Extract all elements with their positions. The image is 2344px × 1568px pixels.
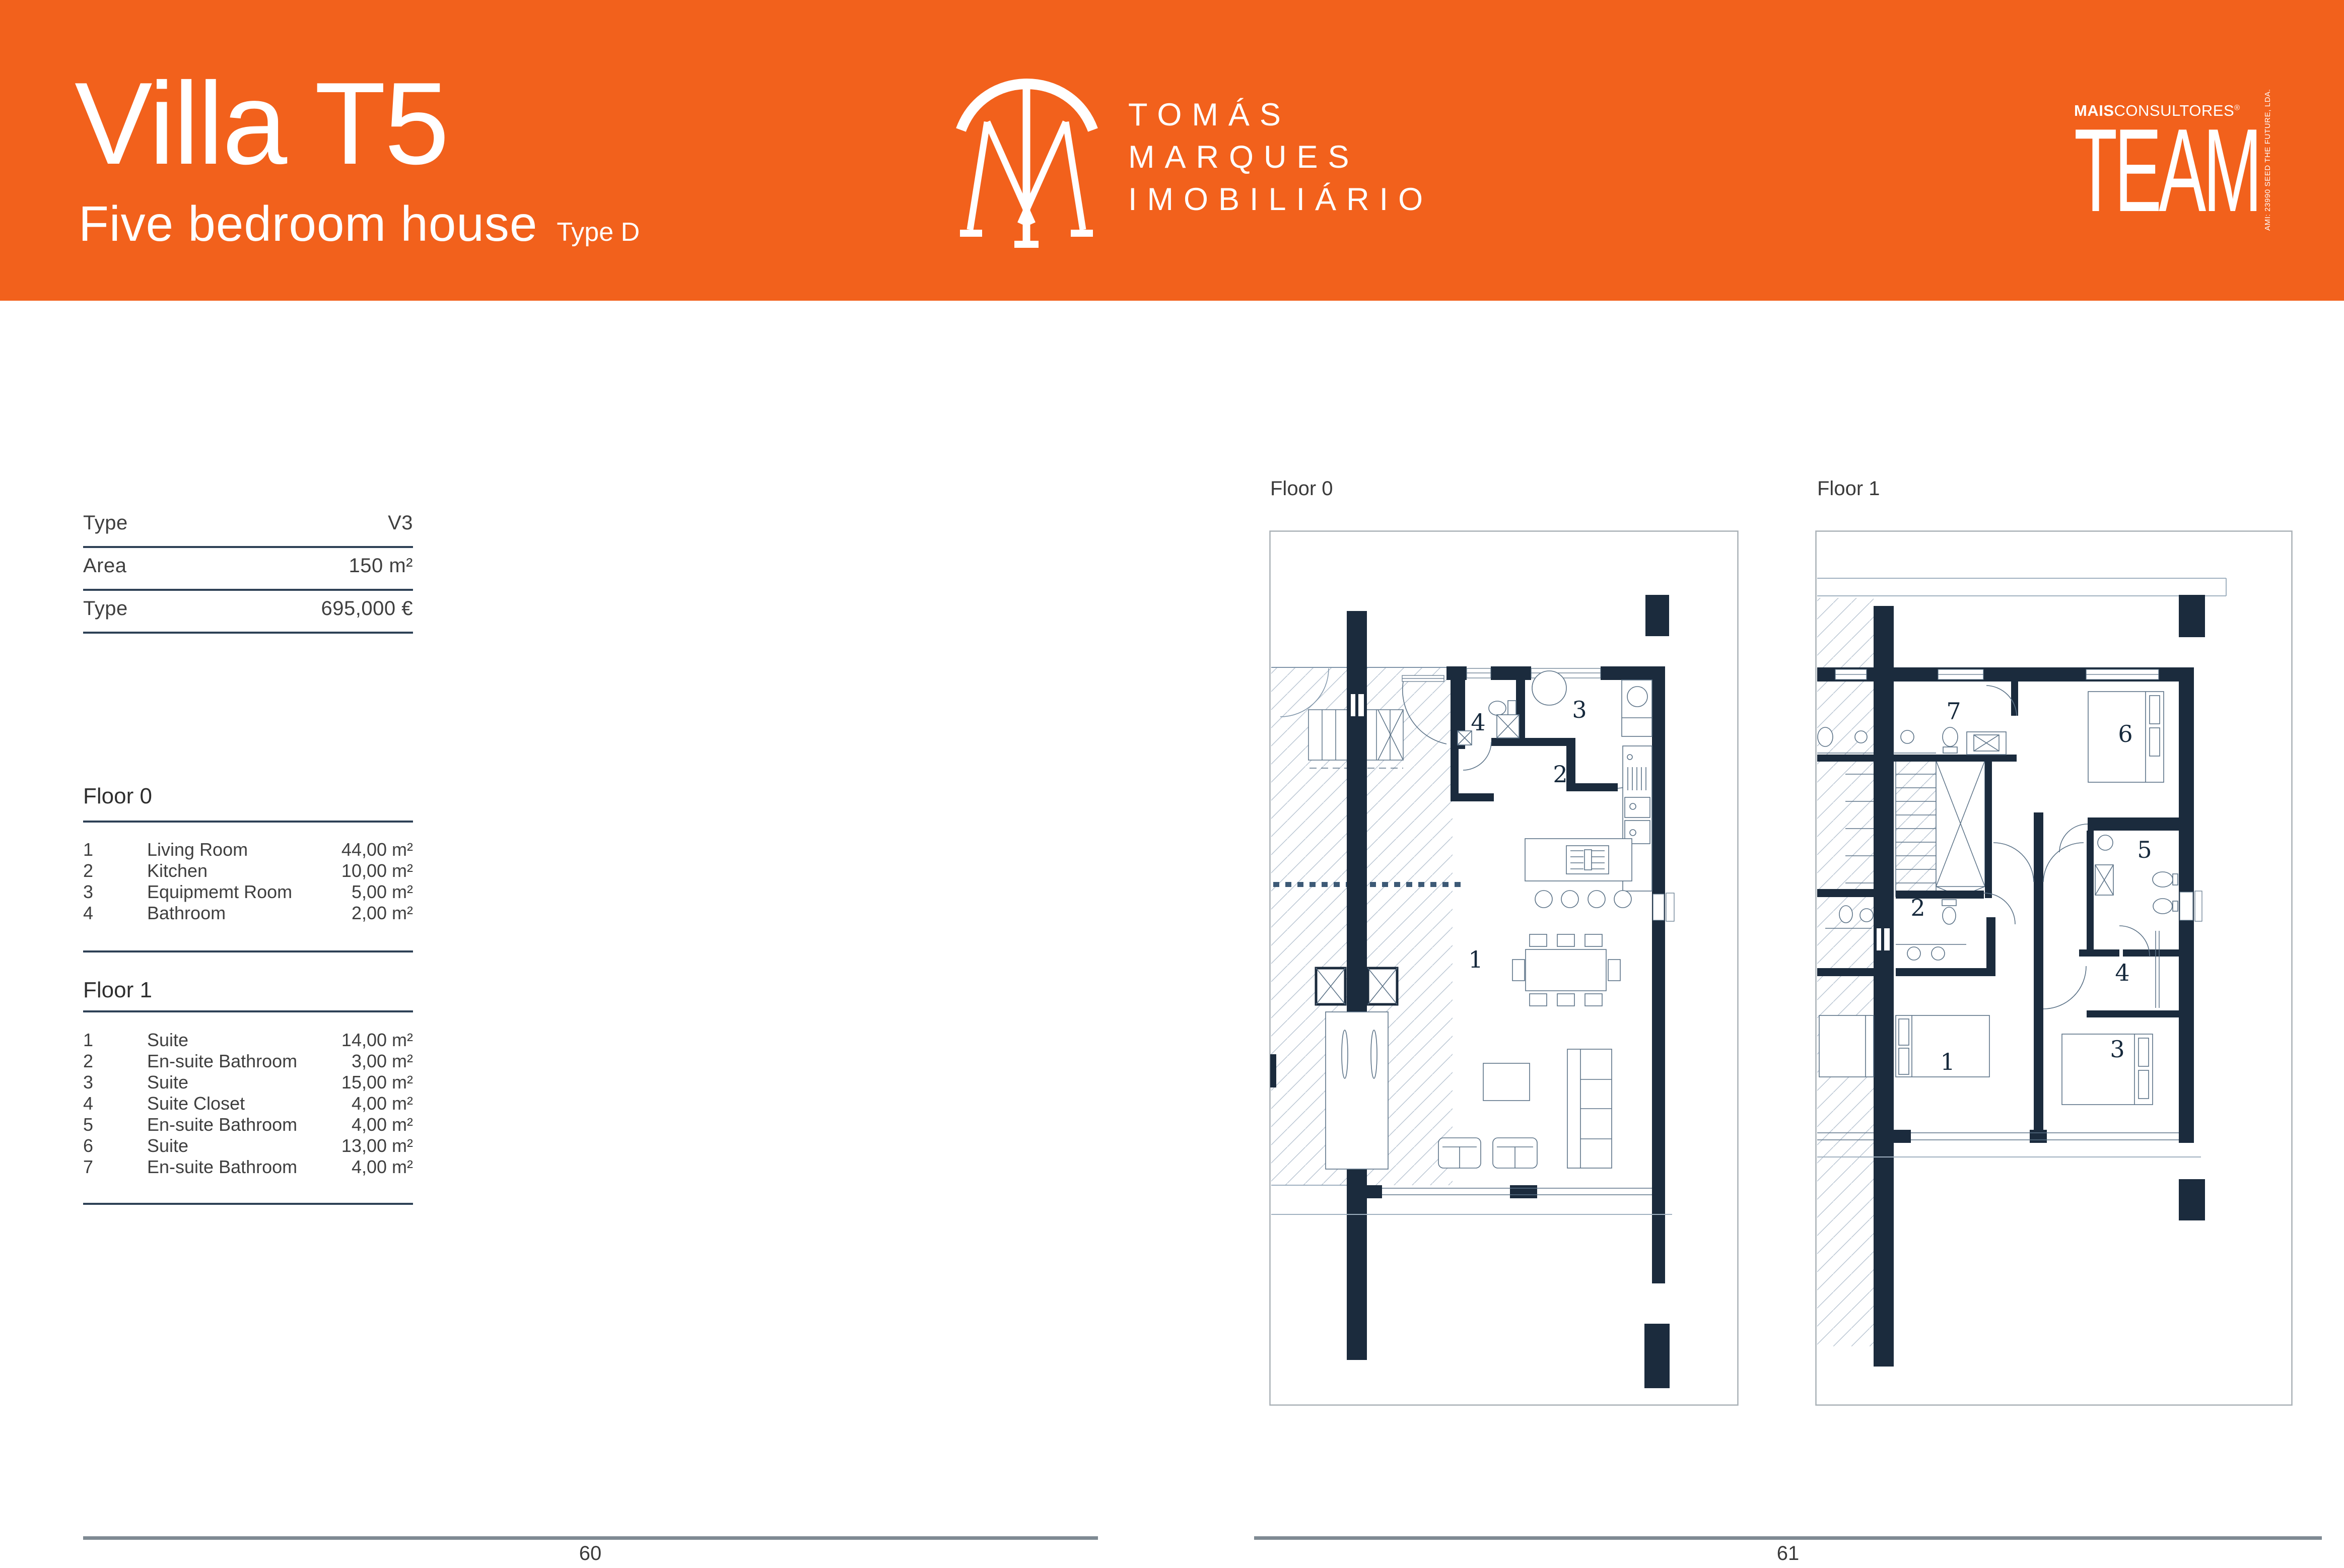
room-number-label: 2 [1553, 761, 1567, 788]
room-name: Living Room [147, 839, 317, 860]
coffee-table [1483, 1063, 1530, 1101]
page-subtitle: Five bedroom house [79, 195, 537, 252]
spec-row: Type V3 [83, 512, 413, 534]
room-name: Bathroom [147, 903, 317, 924]
room-name: Suite [147, 1072, 317, 1093]
room-number: 4 [83, 903, 147, 924]
spec-label: Type [83, 512, 128, 534]
room-name: En-suite Bathroom [147, 1114, 317, 1135]
floor0-plan: 1 2 3 4 [1269, 530, 1739, 1408]
toilet-icon [1508, 701, 1516, 716]
room-name: En-suite Bathroom [147, 1051, 317, 1072]
stool-icon [1588, 891, 1605, 908]
divider [83, 1010, 413, 1012]
spec-label: Type [83, 597, 128, 620]
room-name: En-suite Bathroom [147, 1156, 317, 1178]
bidet-icon [2153, 899, 2172, 914]
partner-logo-word: TEAM [2074, 120, 2259, 221]
room-area: 4,00 m² [317, 1114, 413, 1135]
room-area: 44,00 m² [317, 839, 413, 860]
room-name: Suite [147, 1030, 317, 1051]
room-name: Kitchen [147, 860, 317, 881]
table-row: 3 Equipmemt Room 5,00 m² [83, 881, 413, 903]
stool-icon [1561, 891, 1578, 908]
floor0-plan-drawing: 1 2 3 4 [1269, 530, 1739, 1406]
room-number-label: 3 [1572, 696, 1587, 723]
room-number-label: 5 [2137, 836, 2152, 863]
room-number: 5 [83, 1114, 147, 1135]
room-number: 6 [83, 1135, 147, 1156]
divider [83, 950, 413, 952]
room-number-label: 1 [1940, 1048, 1955, 1075]
table-row: 2 En-suite Bathroom 3,00 m² [83, 1051, 413, 1072]
toilet-icon [1942, 900, 1956, 906]
page-subtitle-row: Five bedroom house Type D [79, 195, 640, 252]
washer-icon [1532, 671, 1566, 705]
floor0-plan-caption: Floor 0 [1270, 478, 1333, 500]
room-number: 2 [83, 1051, 147, 1072]
brochure-page: { "header": { "title": "Villa T5", "subt… [0, 0, 2344, 1568]
room-number-label: 7 [1946, 698, 1961, 725]
spec-row: Area 150 m² [83, 555, 413, 577]
room-number-label: 6 [2118, 720, 2132, 747]
brand-line-2: MARQUES [1128, 136, 1433, 178]
divider [83, 821, 413, 823]
room-area: 4,00 m² [317, 1156, 413, 1178]
floor1-plan-drawing: 1 2 3 4 5 6 7 [1815, 530, 2293, 1406]
room-number-label: 1 [1468, 946, 1483, 973]
page-title: Villa T5 [75, 59, 448, 188]
room-number: 7 [83, 1156, 147, 1178]
tm-monogram-icon [956, 50, 1098, 248]
washbasin-icon [2098, 835, 2113, 850]
room-area: 2,00 m² [317, 903, 413, 924]
type-tag: Type D [557, 217, 640, 247]
tv-board [1326, 1012, 1388, 1169]
floor1-section-title: Floor 1 [83, 978, 152, 1003]
floor0-room-table: 1 Living Room 44,00 m² 2 Kitchen 10,00 m… [83, 839, 413, 924]
footer-rule-left [83, 1536, 1098, 1540]
brand-line-3: IMOBILIÁRIO [1128, 178, 1433, 221]
table-row: 7 En-suite Bathroom 4,00 m² [83, 1156, 413, 1178]
floor0-section-title: Floor 0 [83, 784, 152, 809]
room-number: 3 [83, 1072, 147, 1093]
page-number-right: 61 [1758, 1542, 1818, 1565]
floor1-plan: 1 2 3 4 5 6 7 [1815, 530, 2293, 1408]
floor1-room-table: 1 Suite 14,00 m² 2 En-suite Bathroom 3,0… [83, 1030, 413, 1178]
table-row: 4 Suite Closet 4,00 m² [83, 1093, 413, 1114]
room-name: Suite Closet [147, 1093, 317, 1114]
room-number-label: 2 [1910, 894, 1925, 921]
room-number-label: 3 [2110, 1036, 2124, 1063]
table-row: 5 En-suite Bathroom 4,00 m² [83, 1114, 413, 1135]
room-number-label: 4 [2115, 959, 2129, 986]
table-row: 1 Suite 14,00 m² [83, 1030, 413, 1051]
toilet-icon [1943, 747, 1957, 753]
room-area: 5,00 m² [317, 881, 413, 903]
washbasin-icon [1901, 730, 1914, 743]
table-row: 2 Kitchen 10,00 m² [83, 860, 413, 881]
table-row: 3 Suite 15,00 m² [83, 1072, 413, 1093]
spec-label: Area [83, 555, 127, 577]
footer-rule-right [1254, 1536, 2322, 1540]
partner-side-text: AMI: 23990 SEED THE FUTURE, LDA. [2263, 125, 2272, 231]
room-number: 2 [83, 860, 147, 881]
divider [83, 632, 413, 634]
room-name: Suite [147, 1135, 317, 1156]
spec-value: V3 [388, 512, 413, 534]
divider [83, 589, 413, 591]
brand-line-1: TOMÁS [1128, 94, 1433, 136]
room-area: 15,00 m² [317, 1072, 413, 1093]
room-number: 4 [83, 1093, 147, 1114]
room-number: 1 [83, 1030, 147, 1051]
table-row: 6 Suite 13,00 m² [83, 1135, 413, 1156]
room-area: 13,00 m² [317, 1135, 413, 1156]
room-area: 3,00 m² [317, 1051, 413, 1072]
page-number-left: 60 [560, 1542, 621, 1565]
room-area: 10,00 m² [317, 860, 413, 881]
room-number: 3 [83, 881, 147, 903]
stool-icon [1614, 891, 1631, 908]
header-band: Villa T5 Five bedroom house Type D TOMÁS… [0, 0, 2344, 301]
toilet-icon [2153, 872, 2173, 887]
spec-value: 150 m² [349, 555, 413, 577]
washbasin-icon [1907, 947, 1920, 960]
brand-wordmark: TOMÁS MARQUES IMOBILIÁRIO [1128, 94, 1433, 221]
room-number-label: 4 [1471, 709, 1485, 736]
room-area: 14,00 m² [317, 1030, 413, 1051]
room-area: 4,00 m² [317, 1093, 413, 1114]
stool-icon [1535, 891, 1552, 908]
dining-table [1526, 949, 1606, 991]
spec-value: 695,000 € [321, 597, 413, 620]
divider [83, 546, 413, 548]
floor1-plan-caption: Floor 1 [1817, 478, 1880, 500]
divider [83, 1203, 413, 1205]
table-row: 4 Bathroom 2,00 m² [83, 903, 413, 924]
spec-row: Type 695,000 € [83, 597, 413, 620]
room-number: 1 [83, 839, 147, 860]
washbasin-icon [1932, 947, 1945, 960]
table-row: 1 Living Room 44,00 m² [83, 839, 413, 860]
room-name: Equipmemt Room [147, 881, 317, 903]
